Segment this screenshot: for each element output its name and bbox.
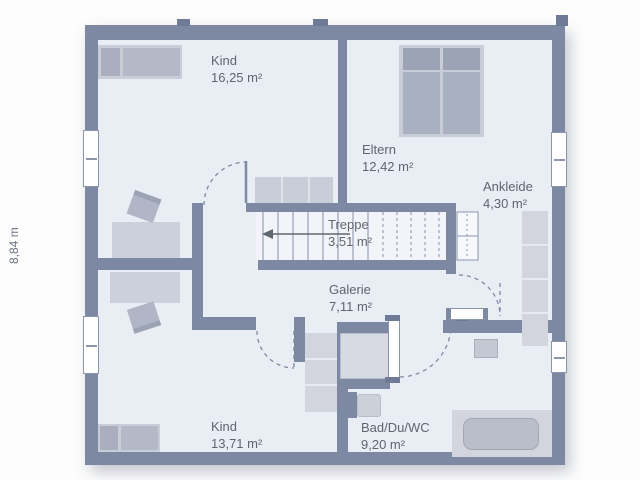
- room-label-galerie: Galerie 7,11 m²: [329, 281, 372, 315]
- door-swing-ankleide: [459, 275, 500, 316]
- room-area: 16,25 m²: [211, 69, 262, 86]
- room-area: 7,11 m²: [329, 298, 372, 315]
- door-swing-kind-top: [204, 162, 245, 205]
- room-label-treppe: Treppe 3,51 m²: [328, 216, 372, 250]
- room-label-kind-bottom: Kind 13,71 m²: [211, 418, 262, 452]
- room-name: Galerie: [329, 281, 372, 298]
- room-label-ankleide: Ankleide 4,30 m²: [483, 178, 533, 212]
- room-name: Bad/Du/WC: [361, 419, 430, 436]
- room-area: 3,51 m²: [328, 233, 372, 250]
- stair-treads-dashed: [383, 212, 439, 260]
- room-label-eltern: Eltern 12,42 m²: [362, 141, 413, 175]
- dimension-label-height: 8,84 m: [1, 208, 27, 284]
- room-label-kind-top: Kind 16,25 m²: [211, 52, 262, 86]
- room-area: 9,20 m²: [361, 436, 430, 453]
- room-area: 13,71 m²: [211, 435, 262, 452]
- room-area: 4,30 m²: [483, 195, 533, 212]
- room-name: Treppe: [328, 216, 372, 233]
- room-name: Kind: [211, 52, 262, 69]
- plan-linework: [0, 0, 640, 480]
- room-name: Ankleide: [483, 178, 533, 195]
- room-label-bad: Bad/Du/WC 9,20 m²: [361, 419, 430, 453]
- room-area: 12,42 m²: [362, 158, 413, 175]
- room-name: Kind: [211, 418, 262, 435]
- door-swing-kind-bottom: [257, 331, 294, 368]
- door-swing-bad: [400, 325, 451, 377]
- room-name: Eltern: [362, 141, 413, 158]
- shelf-ankleide: [457, 212, 478, 260]
- floor-plan: Kind 16,25 m² Eltern 12,42 m² Ankleide 4…: [0, 0, 640, 480]
